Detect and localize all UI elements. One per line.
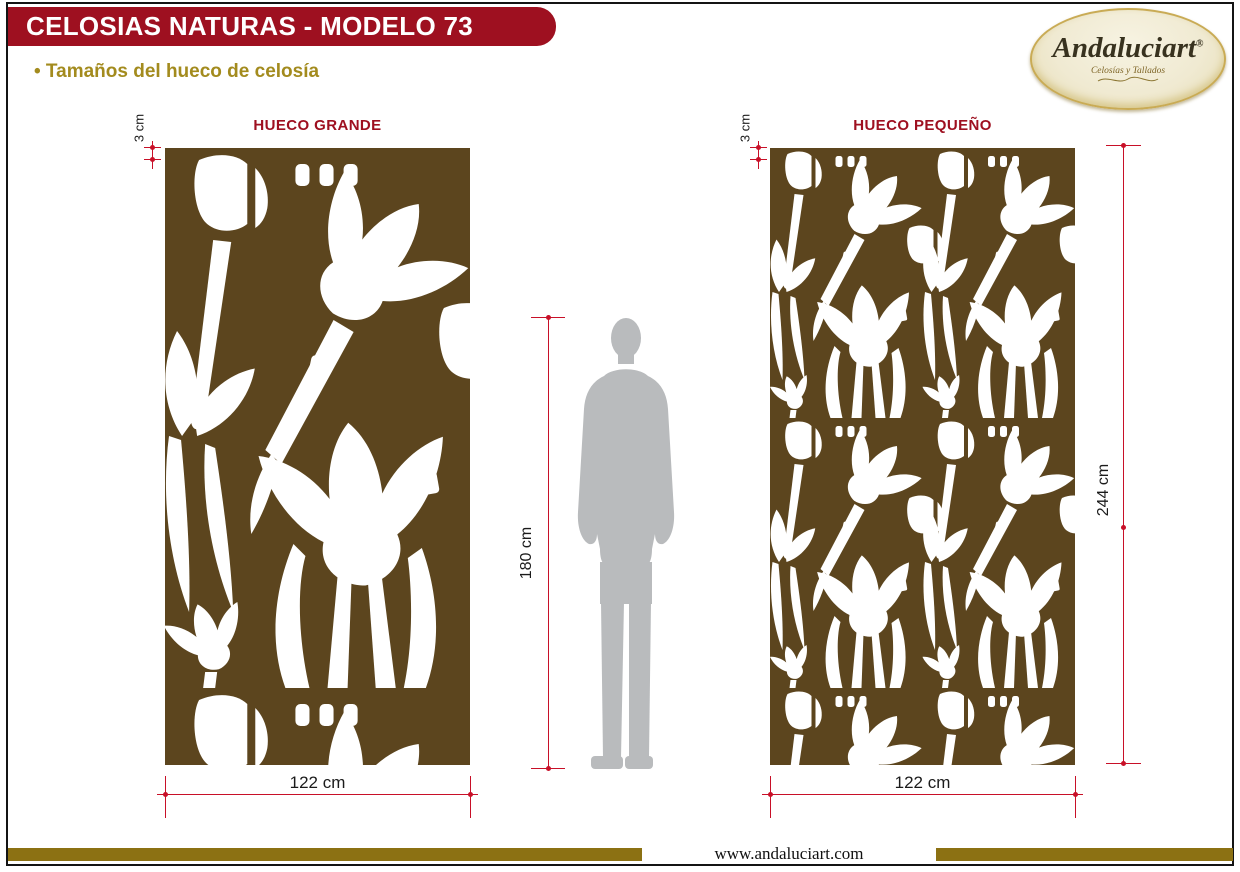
human-silhouette-icon [563, 314, 693, 778]
lattice-panel-grande [165, 148, 470, 765]
dim-height-pequeno-line [1123, 145, 1124, 764]
dim-ext-line [770, 776, 771, 818]
brand-name: Andaluciart® [1053, 34, 1204, 63]
dim-dot [756, 157, 761, 162]
dim-width-pequeno-label: 122 cm [770, 773, 1075, 793]
logo-flourish-icon [1096, 76, 1160, 84]
dim-dot [546, 766, 551, 771]
dim-height-person-label: 180 cm [518, 527, 536, 579]
footer-bar-right [936, 848, 1233, 861]
header-bar: CELOSIAS NATURAS - MODELO 73 [8, 7, 556, 46]
dim-ext-line [470, 776, 471, 818]
dim-dot [1073, 792, 1078, 797]
dim-3cm-grande-label: 3 cm [132, 114, 147, 142]
dim-height-person-line [548, 317, 549, 769]
dim-width-pequeno-line [762, 794, 1083, 795]
dim-dot [1121, 761, 1126, 766]
dim-dot [756, 145, 761, 150]
tulip-pattern-large-icon [165, 148, 470, 765]
brand-tagline: Celosías y Tallados [1091, 66, 1165, 76]
lattice-panel-pequeno [770, 148, 1075, 765]
dim-ext-line [1075, 776, 1076, 818]
page-title: CELOSIAS NATURAS - MODELO 73 [26, 11, 473, 42]
footer-url: www.andaluciart.com [642, 844, 936, 864]
spec-sheet-page: CELOSIAS NATURAS - MODELO 73 • Tamaños d… [0, 0, 1240, 872]
panel-title-pequeno: HUECO PEQUEÑO [770, 117, 1075, 134]
dim-width-grande-label: 122 cm [165, 773, 470, 793]
footer-bar-left [8, 848, 642, 861]
dim-3cm-pequeno-label: 3 cm [738, 114, 753, 142]
dim-dot [546, 315, 551, 320]
dim-dot [1121, 143, 1126, 148]
registered-mark: ® [1196, 38, 1203, 49]
dim-height-pequeno-label: 244 cm [1095, 464, 1113, 516]
section-subtitle: • Tamaños del hueco de celosía [34, 61, 319, 83]
dim-width-grande-line [157, 794, 478, 795]
dim-ext-line [165, 776, 166, 818]
dim-dot [150, 145, 155, 150]
brand-logo: Andaluciart® Celosías y Tallados [1030, 8, 1226, 110]
dim-dot [150, 157, 155, 162]
dim-dot [163, 792, 168, 797]
dim-dot [468, 792, 473, 797]
panel-title-grande: HUECO GRANDE [165, 117, 470, 134]
tulip-pattern-small-icon [770, 148, 1075, 765]
dim-dot [1121, 525, 1126, 530]
dim-dot [768, 792, 773, 797]
